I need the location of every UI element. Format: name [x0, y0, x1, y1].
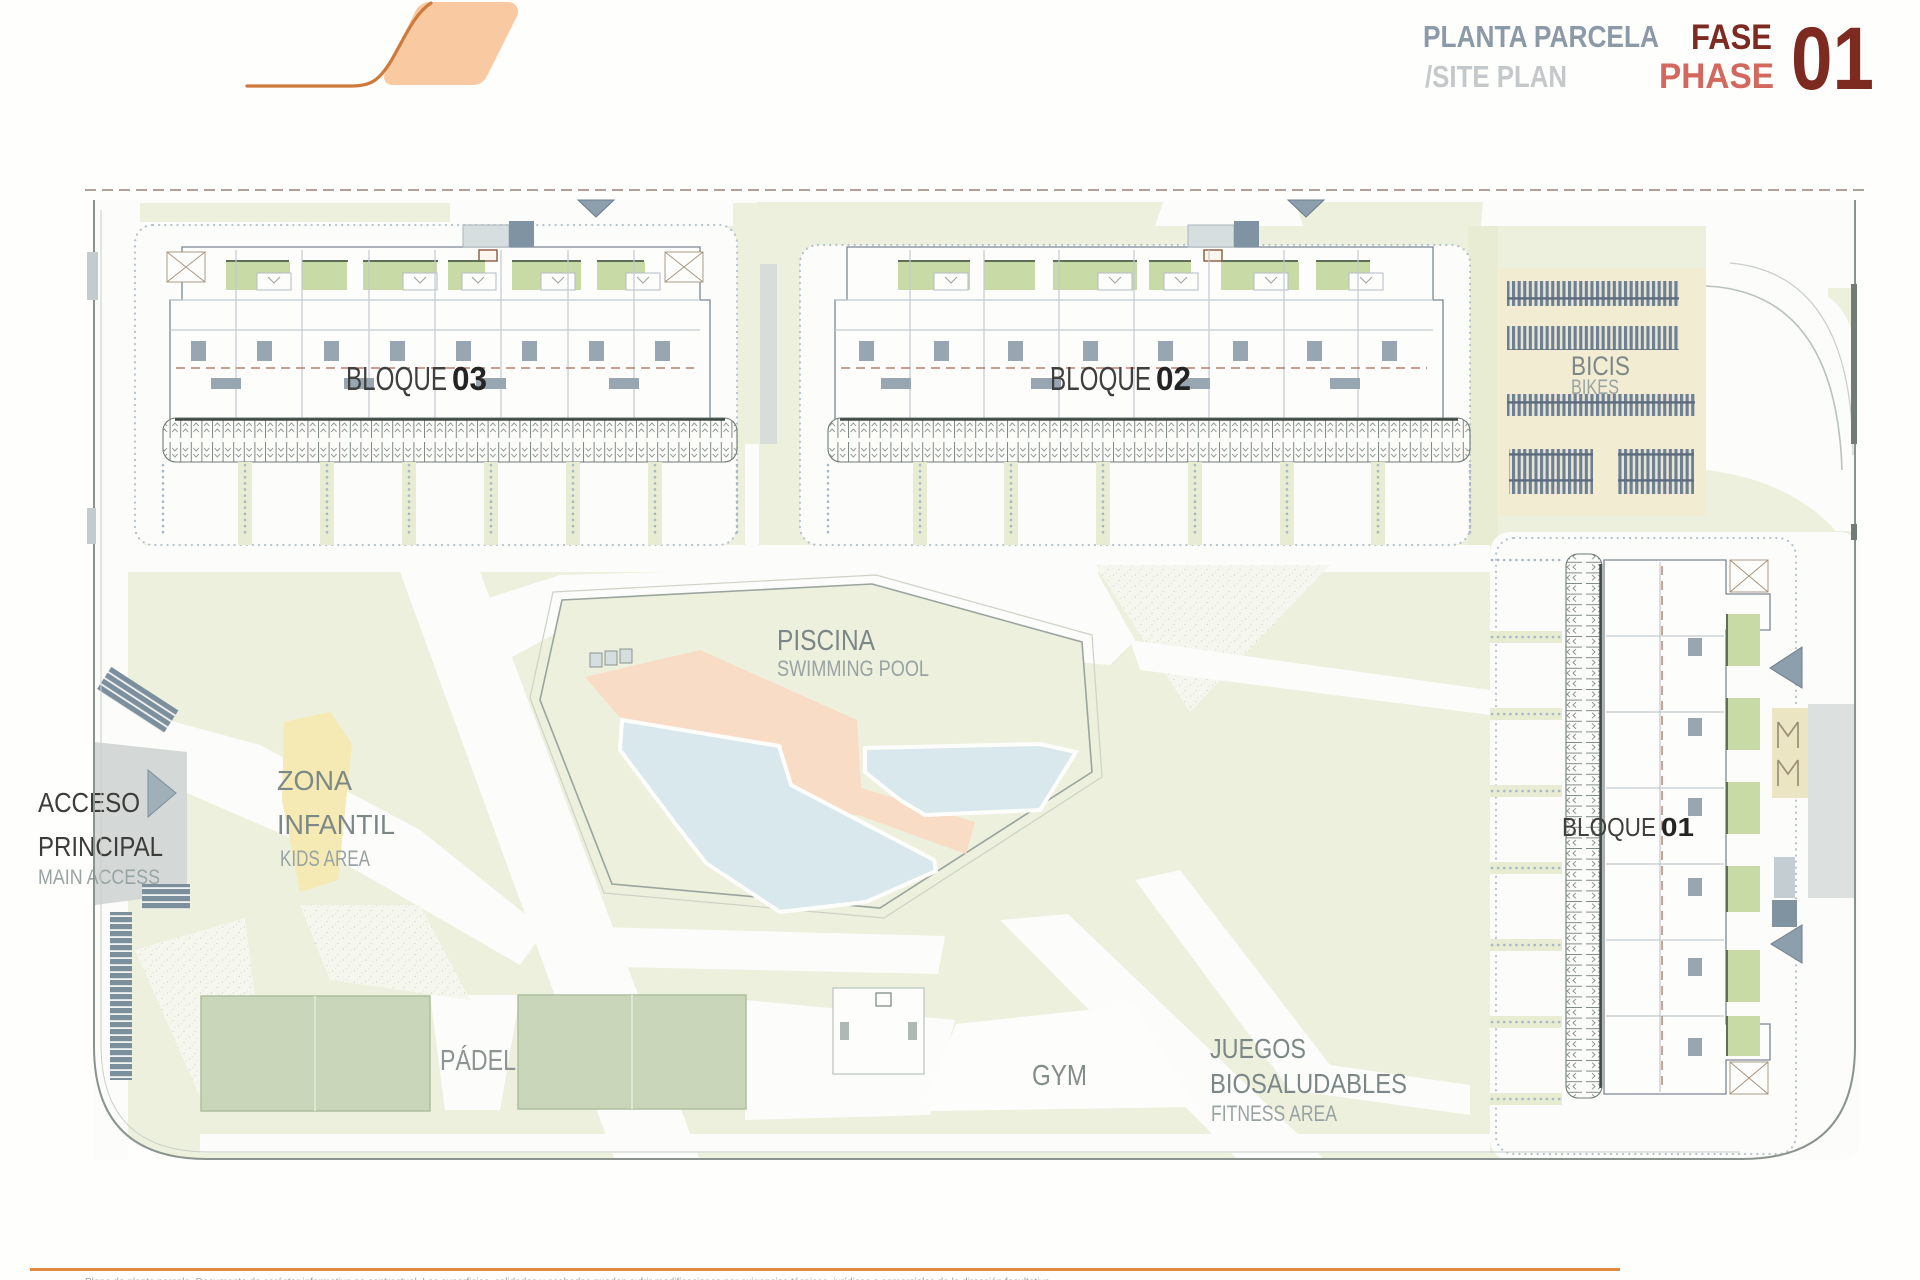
svg-text:ZONA: ZONA	[277, 765, 352, 796]
svg-text:PÁDEL: PÁDEL	[440, 1044, 516, 1077]
svg-text:PLANTA PARCELA: PLANTA PARCELA	[1423, 19, 1659, 54]
svg-text:FASE: FASE	[1691, 18, 1772, 57]
svg-text:BIOSALUDABLES: BIOSALUDABLES	[1210, 1068, 1407, 1099]
svg-text:INFANTIL: INFANTIL	[277, 809, 395, 840]
svg-text:PHASE: PHASE	[1659, 57, 1774, 96]
svg-text:02: 02	[1156, 360, 1191, 397]
svg-text:BLOQUE: BLOQUE	[346, 360, 447, 397]
svg-text:PISCINA: PISCINA	[777, 625, 876, 657]
svg-text:BIKES: BIKES	[1571, 376, 1619, 399]
svg-text:BLOQUE: BLOQUE	[1050, 360, 1151, 397]
svg-text:BLOQUE: BLOQUE	[1562, 812, 1656, 842]
svg-text:03: 03	[452, 360, 487, 397]
svg-text:/SITE PLAN: /SITE PLAN	[1425, 59, 1567, 94]
svg-text:ACCESO: ACCESO	[38, 787, 140, 818]
svg-text:GYM: GYM	[1032, 1060, 1087, 1092]
svg-text:MAIN ACCESS: MAIN ACCESS	[38, 866, 160, 889]
svg-text:SWIMMING POOL: SWIMMING POOL	[777, 656, 929, 681]
svg-text:KIDS AREA: KIDS AREA	[280, 846, 370, 871]
svg-text:FITNESS AREA: FITNESS AREA	[1211, 1101, 1337, 1126]
svg-text:01: 01	[1661, 812, 1694, 842]
svg-text:01: 01	[1791, 8, 1874, 108]
svg-text:JUEGOS: JUEGOS	[1210, 1033, 1306, 1064]
